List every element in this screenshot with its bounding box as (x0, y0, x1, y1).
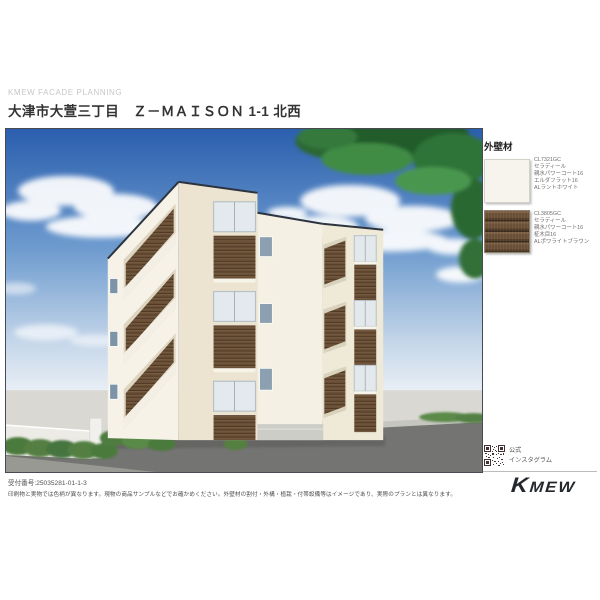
material-label-2: CL3805GC セラディール 親水パワーコート16 柾木目16 ALポワライト… (534, 211, 589, 246)
instagram-label-line2: インスタグラム (509, 456, 552, 466)
receipt-number: 受付番号:25035281-01-1-3 (8, 477, 87, 487)
material-series: セラディール (534, 164, 583, 171)
material-coating: 親水パワーコート16 (534, 225, 589, 232)
material-coating: 親水パワーコート16 (534, 171, 583, 178)
materials-panel: 外壁材 CL7321GC セラディール 親水パワーコート16 エルダフラット16… (483, 131, 597, 472)
right-wing-balconies (323, 237, 346, 418)
building-rendering (5, 128, 483, 473)
material-swatch-wood (484, 210, 530, 253)
page-title: 大津市大萱三丁目 Ｚ－ＭＡＩＳＯＮ 1-1 北西 (8, 100, 301, 120)
instagram-label: 公式 インスタグラム (509, 446, 552, 465)
material-color: ALポワライトブラウン (534, 239, 589, 246)
material-swatch-white (484, 159, 530, 203)
material-series: セラディール (534, 218, 589, 225)
disclaimer-text: 印刷物と実物では色柄が異なります。現物の商品サンプルなどでお確かめください。外壁… (8, 490, 456, 498)
qr-code-instagram-icon (484, 445, 505, 466)
material-pattern: 柾木目16 (534, 232, 589, 239)
kmew-logo: Kmew (510, 474, 577, 498)
material-code: CL7321GC (534, 157, 583, 164)
materials-heading: 外壁材 (484, 139, 513, 153)
entrance-plinth (257, 424, 323, 440)
material-color: ALラントホワイト (534, 185, 583, 192)
instagram-label-line1: 公式 (509, 446, 552, 456)
material-pattern: エルダフラット16 (534, 178, 583, 185)
front-face-windows (214, 202, 256, 440)
brand-line: KMEW FACADE PLANNING (8, 88, 122, 97)
rendering-canvas (6, 129, 482, 472)
right-wing-windows (354, 236, 376, 432)
material-label-1: CL7321GC セラディール 親水パワーコート16 エルダフラット16 ALラ… (534, 157, 583, 192)
material-code: CL3805GC (534, 211, 589, 218)
